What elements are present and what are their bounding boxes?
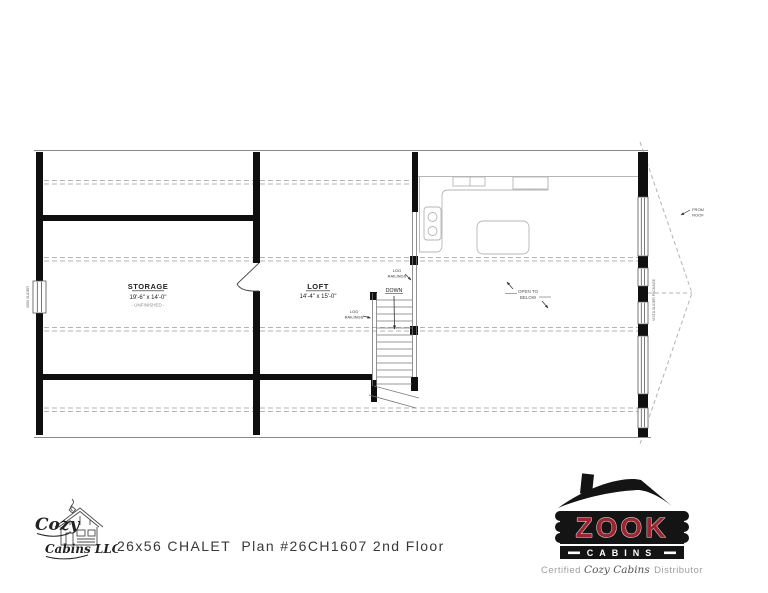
- zook-roof: [558, 473, 672, 508]
- tagline-certified: Certified: [541, 565, 584, 576]
- loft-room-label: LOFT 14'-4" x 15'-0": [300, 282, 337, 300]
- loft-dims: 14'-4" x 15'-0": [300, 294, 337, 300]
- log-railings-label-upper: LOG RAILINGS: [388, 268, 411, 280]
- storage-room-label: STORAGE 19'-6" x 14'-0" - UNFINISHED -: [128, 282, 168, 308]
- floor-plan-page: STORAGE 19'-6" x 14'-0" - UNFINISHED - L…: [0, 0, 768, 593]
- right-window-wall: [638, 197, 648, 428]
- tagline-distributor: Distributor: [654, 565, 703, 576]
- storage-dims: 19'-6" x 14'-0": [130, 295, 167, 301]
- left-window: [33, 281, 46, 313]
- interior-walls: [43, 152, 418, 435]
- storage-door: [237, 263, 259, 291]
- cozy-cabins-logo: Cozy Cabins LLC: [34, 496, 118, 572]
- open-to-below-l1: OPEN TO: [518, 289, 539, 294]
- zook-cabins-band: CABINS: [560, 546, 684, 559]
- log-railings-l2: RAILINGS: [388, 274, 407, 279]
- left-window-size-label: 3050 SLIDER: [26, 286, 30, 308]
- plan-title: 26x56 CHALET Plan #26CH1607 2nd Floor: [117, 538, 445, 554]
- tagline-cozy-cabins: Cozy Cabins: [584, 564, 650, 576]
- down-label: DOWN: [385, 288, 403, 329]
- loft-name: LOFT: [307, 282, 329, 291]
- exterior-walls: [36, 152, 648, 437]
- kitchen-below-outline: [418, 176, 638, 254]
- storage-note: - UNFINISHED -: [132, 303, 166, 308]
- open-to-below-label: OPEN TO BELOW: [505, 282, 551, 308]
- log-railings-l2: RAILINGS: [345, 315, 364, 320]
- cabins-llc-word: Cabins LLC: [45, 542, 118, 556]
- island: [477, 221, 529, 254]
- from-roof-l1: FROM: [692, 207, 704, 212]
- cozy-word: Cozy: [35, 515, 81, 535]
- log-railings-l1: LOG: [350, 309, 358, 314]
- open-to-below-l2: BELOW: [520, 295, 537, 300]
- right-window-size-label: VISTA SLIDER PACKAGE: [652, 278, 656, 321]
- from-roof-label: FROM ROOF: [681, 207, 704, 218]
- log-railings-l1: LOG: [393, 268, 401, 273]
- down-text: DOWN: [386, 288, 403, 294]
- from-roof-l2: ROOF: [692, 213, 704, 218]
- roof-eave-lines: [34, 151, 651, 438]
- zook-wordmark: ZOOK: [576, 512, 669, 543]
- zook-tagline: Certified Cozy Cabins Distributor: [541, 560, 703, 577]
- zook-cabins-logo: ZOOK CABINS Certified Cozy Cabins Distri…: [541, 466, 706, 582]
- storage-name: STORAGE: [128, 282, 168, 291]
- log-railings-label-lower: LOG RAILINGS: [345, 309, 371, 320]
- zook-cabins-text: CABINS: [587, 548, 658, 558]
